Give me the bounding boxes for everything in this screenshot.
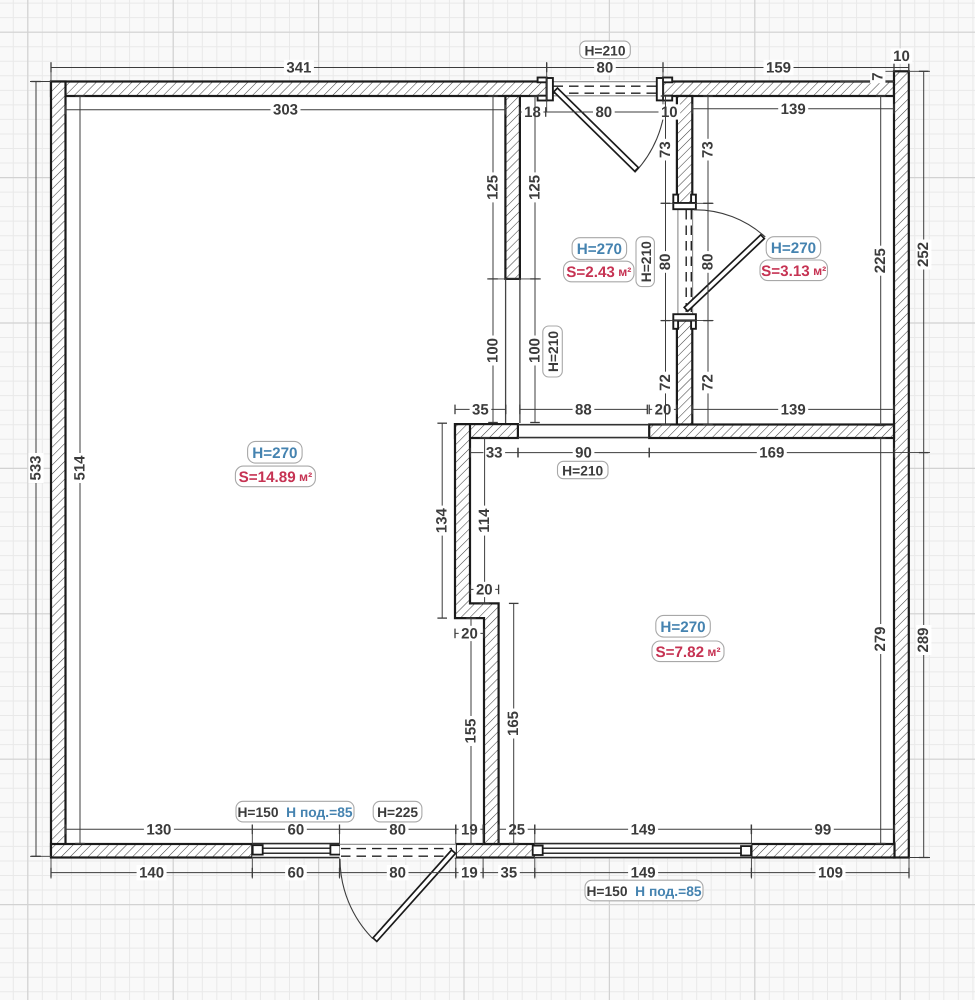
svg-text:60: 60 — [288, 821, 305, 838]
svg-text:19: 19 — [461, 821, 478, 838]
svg-text:88: 88 — [575, 401, 592, 418]
svg-text:125: 125 — [485, 175, 502, 200]
svg-text:H=225: H=225 — [377, 805, 418, 820]
svg-text:225: 225 — [872, 248, 889, 273]
svg-text:72: 72 — [700, 374, 717, 391]
svg-text:25: 25 — [508, 821, 525, 838]
svg-text:H=270: H=270 — [252, 444, 297, 461]
svg-text:289: 289 — [915, 627, 932, 652]
svg-text:80: 80 — [389, 821, 406, 838]
svg-text:109: 109 — [818, 865, 843, 882]
svg-text:35: 35 — [501, 865, 518, 882]
svg-text:10: 10 — [893, 48, 910, 65]
svg-text:73: 73 — [700, 141, 717, 158]
svg-text:169: 169 — [759, 445, 784, 462]
svg-text:80: 80 — [597, 60, 614, 77]
svg-text:130: 130 — [146, 821, 171, 838]
svg-text:341: 341 — [286, 60, 311, 77]
svg-text:72: 72 — [657, 374, 674, 391]
svg-text:10: 10 — [661, 104, 678, 121]
svg-text:H=210: H=210 — [584, 43, 625, 58]
svg-text:60: 60 — [288, 865, 305, 882]
svg-text:S=2.43 м²: S=2.43 м² — [566, 264, 631, 281]
svg-text:H=150 Н под.=85: H=150 Н под.=85 — [586, 884, 701, 899]
svg-text:S=3.13 м²: S=3.13 м² — [761, 262, 826, 279]
svg-text:514: 514 — [72, 455, 89, 481]
svg-text:18: 18 — [524, 104, 541, 121]
svg-text:140: 140 — [139, 865, 164, 882]
svg-text:139: 139 — [781, 401, 806, 418]
svg-text:279: 279 — [872, 626, 889, 651]
svg-text:114: 114 — [476, 508, 493, 533]
svg-text:73: 73 — [657, 141, 674, 158]
svg-text:7: 7 — [869, 72, 886, 80]
svg-text:20: 20 — [461, 625, 478, 642]
svg-text:139: 139 — [781, 101, 806, 118]
svg-text:165: 165 — [505, 711, 522, 736]
svg-text:80: 80 — [389, 865, 406, 882]
svg-text:19: 19 — [461, 865, 478, 882]
svg-text:S=7.82 м²: S=7.82 м² — [655, 643, 720, 660]
svg-text:125: 125 — [527, 175, 544, 200]
svg-text:H=210: H=210 — [546, 331, 561, 372]
svg-text:80: 80 — [595, 104, 612, 121]
svg-text:20: 20 — [655, 401, 672, 418]
svg-text:155: 155 — [463, 718, 480, 743]
svg-text:252: 252 — [915, 242, 932, 267]
svg-text:90: 90 — [575, 445, 592, 462]
svg-text:H=210: H=210 — [638, 241, 653, 282]
svg-text:H=270: H=270 — [577, 241, 622, 258]
svg-text:149: 149 — [631, 865, 656, 882]
svg-text:80: 80 — [700, 254, 717, 271]
svg-text:35: 35 — [472, 401, 489, 418]
svg-text:100: 100 — [527, 338, 544, 363]
svg-text:303: 303 — [273, 102, 298, 119]
svg-text:H=150 Н под.=85: H=150 Н под.=85 — [237, 805, 352, 820]
svg-text:S=14.89 м²: S=14.89 м² — [239, 469, 312, 486]
svg-text:134: 134 — [434, 507, 451, 533]
svg-text:149: 149 — [631, 821, 656, 838]
svg-text:33: 33 — [486, 445, 503, 462]
svg-text:100: 100 — [485, 338, 502, 363]
svg-text:H=270: H=270 — [771, 240, 816, 257]
svg-text:80: 80 — [657, 254, 674, 271]
svg-text:20: 20 — [476, 581, 493, 598]
svg-text:99: 99 — [815, 821, 832, 838]
svg-text:159: 159 — [766, 60, 791, 77]
svg-text:H=270: H=270 — [660, 618, 705, 635]
svg-text:H=210: H=210 — [562, 463, 603, 478]
svg-text:533: 533 — [28, 455, 45, 480]
